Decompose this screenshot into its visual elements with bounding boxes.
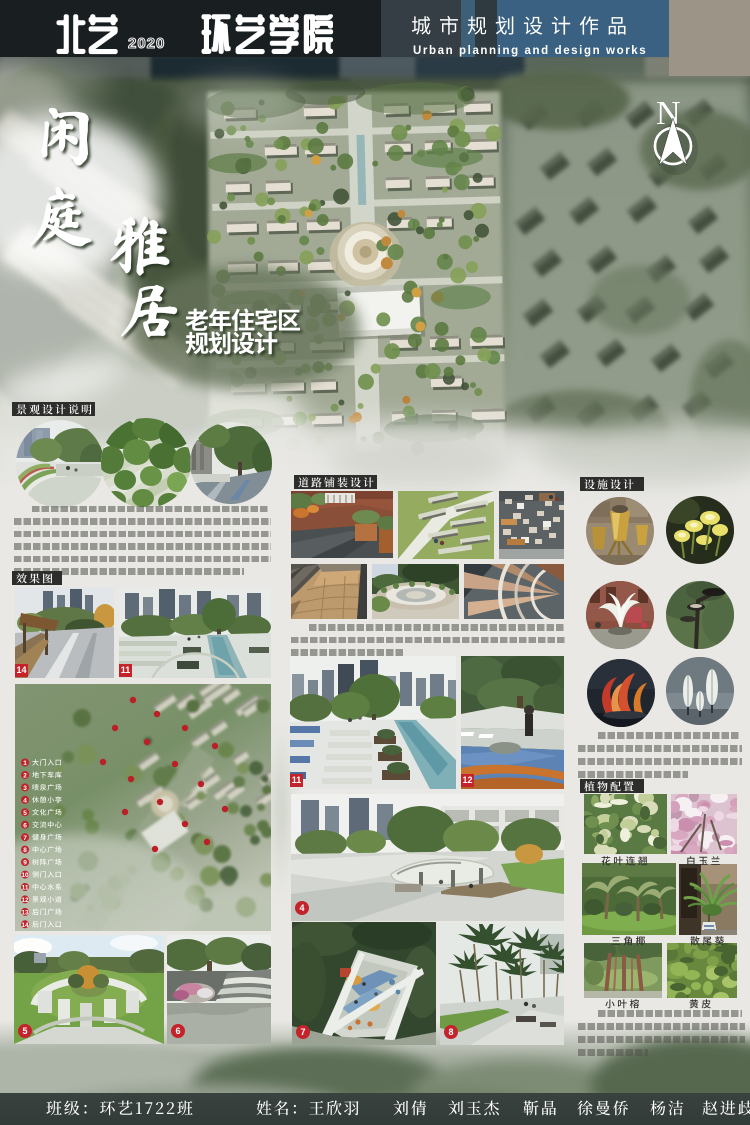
svg-text:6: 6	[23, 822, 27, 829]
svg-text:13: 13	[21, 910, 29, 917]
svg-text:11: 11	[22, 885, 29, 892]
svg-text:2020: 2020	[128, 35, 165, 52]
svg-text:12: 12	[21, 897, 29, 904]
svg-text:5: 5	[23, 810, 27, 817]
svg-text:9: 9	[23, 860, 27, 867]
svg-text:8: 8	[23, 847, 27, 854]
svg-text:10: 10	[21, 872, 29, 879]
svg-text:14: 14	[21, 922, 29, 929]
svg-text:1: 1	[23, 760, 27, 767]
svg-text:4: 4	[23, 797, 27, 804]
svg-text:3: 3	[23, 785, 27, 792]
svg-text:2: 2	[23, 773, 27, 780]
svg-text:7: 7	[23, 835, 27, 842]
svg-text:Urban planning and design work: Urban planning and design works	[413, 45, 647, 57]
